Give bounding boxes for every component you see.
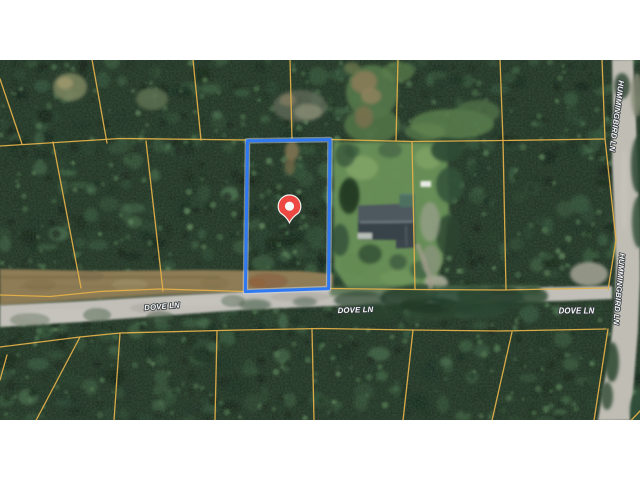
svg-text:DOVE LN: DOVE LN bbox=[559, 307, 595, 316]
svg-text:DOVE LN: DOVE LN bbox=[338, 305, 374, 315]
